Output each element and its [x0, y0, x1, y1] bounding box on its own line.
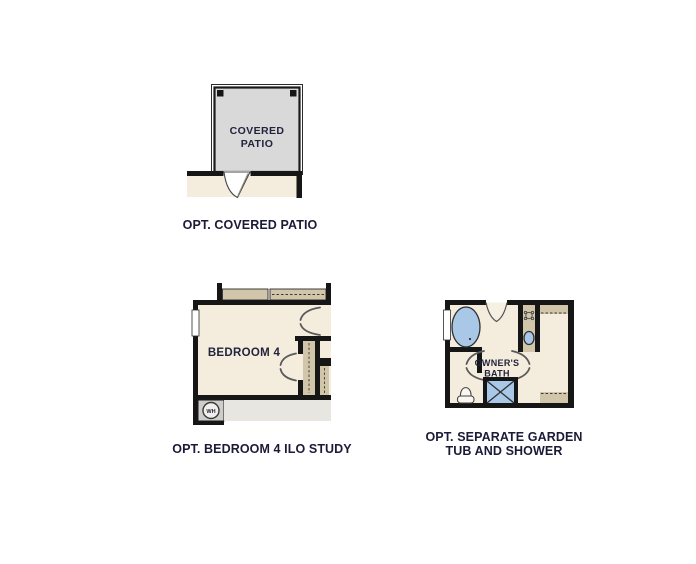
bedroom4-wall-stub-mid: [295, 336, 331, 341]
bath-wall-right: [568, 300, 574, 408]
bath-window: [444, 310, 451, 340]
patio-room-label-line1: COVERED: [230, 125, 285, 137]
patio-post-left: [217, 90, 224, 97]
owners-bath-label-line2: BATH: [484, 369, 510, 379]
patio-house-wall-right: [297, 171, 303, 198]
bedroom4-caption: OPT. BEDROOM 4 ILO STUDY: [172, 442, 352, 456]
patio-caption: OPT. COVERED PATIO: [183, 218, 318, 232]
patio-room-label-line2: PATIO: [241, 138, 274, 150]
tub-room-wall-bottom: [445, 347, 482, 352]
sink-icon: [524, 332, 534, 345]
shower-icon: [487, 381, 514, 403]
closet2-wall-stub: [320, 358, 331, 366]
tub-drain-icon: [469, 338, 471, 340]
bedroom4-window: [192, 310, 199, 336]
vanity-wall-right: [535, 300, 540, 352]
garage-floor-strip: [224, 400, 331, 421]
owners-bath-label-line1: OWNER'S: [475, 358, 520, 368]
floorplan-sheet: COVERED PATIO OPT. COVERED PATIO: [0, 0, 696, 564]
bath-wall-bottom: [445, 403, 574, 408]
bath-caption-line2: TUB AND SHOWER: [446, 444, 563, 458]
bedroom4-wall-bottom: [193, 395, 331, 400]
shower-wall-right: [514, 377, 518, 403]
bedroom4-cabinet-top-left: [223, 289, 269, 300]
patio-post-right: [290, 90, 297, 97]
bedroom4-wall-bottomleft: [193, 421, 224, 425]
plan-covered-patio: COVERED PATIO OPT. COVERED PATIO: [183, 85, 318, 233]
closet-wall-right: [315, 341, 320, 395]
closet-wall-left-lower: [298, 380, 303, 395]
closet-wall-left-upper: [298, 341, 303, 354]
bath-wall-top: [445, 300, 574, 305]
plan-owners-bath: OWNER'S BATH OPT. SEPARATE GARDEN TUB AN…: [425, 300, 582, 458]
bedroom4-wall-stub-top: [217, 283, 222, 300]
bedroom4-wall-top: [193, 300, 331, 305]
bath-caption-line1: OPT. SEPARATE GARDEN: [425, 430, 582, 444]
vanity-wall-left: [518, 300, 523, 352]
floorplan-canvas: COVERED PATIO OPT. COVERED PATIO: [0, 0, 696, 564]
bedroom4-room-label: BEDROOM 4: [208, 347, 281, 359]
shower-wall-left: [483, 377, 487, 403]
water-heater-label: WH: [206, 409, 215, 415]
plan-bedroom4: WH BEDROOM 4 OPT. BEDROOM 4 ILO STUDY: [172, 283, 352, 456]
garden-tub-icon: [452, 307, 480, 347]
bedroom4-wall-stub-topright: [326, 283, 331, 300]
